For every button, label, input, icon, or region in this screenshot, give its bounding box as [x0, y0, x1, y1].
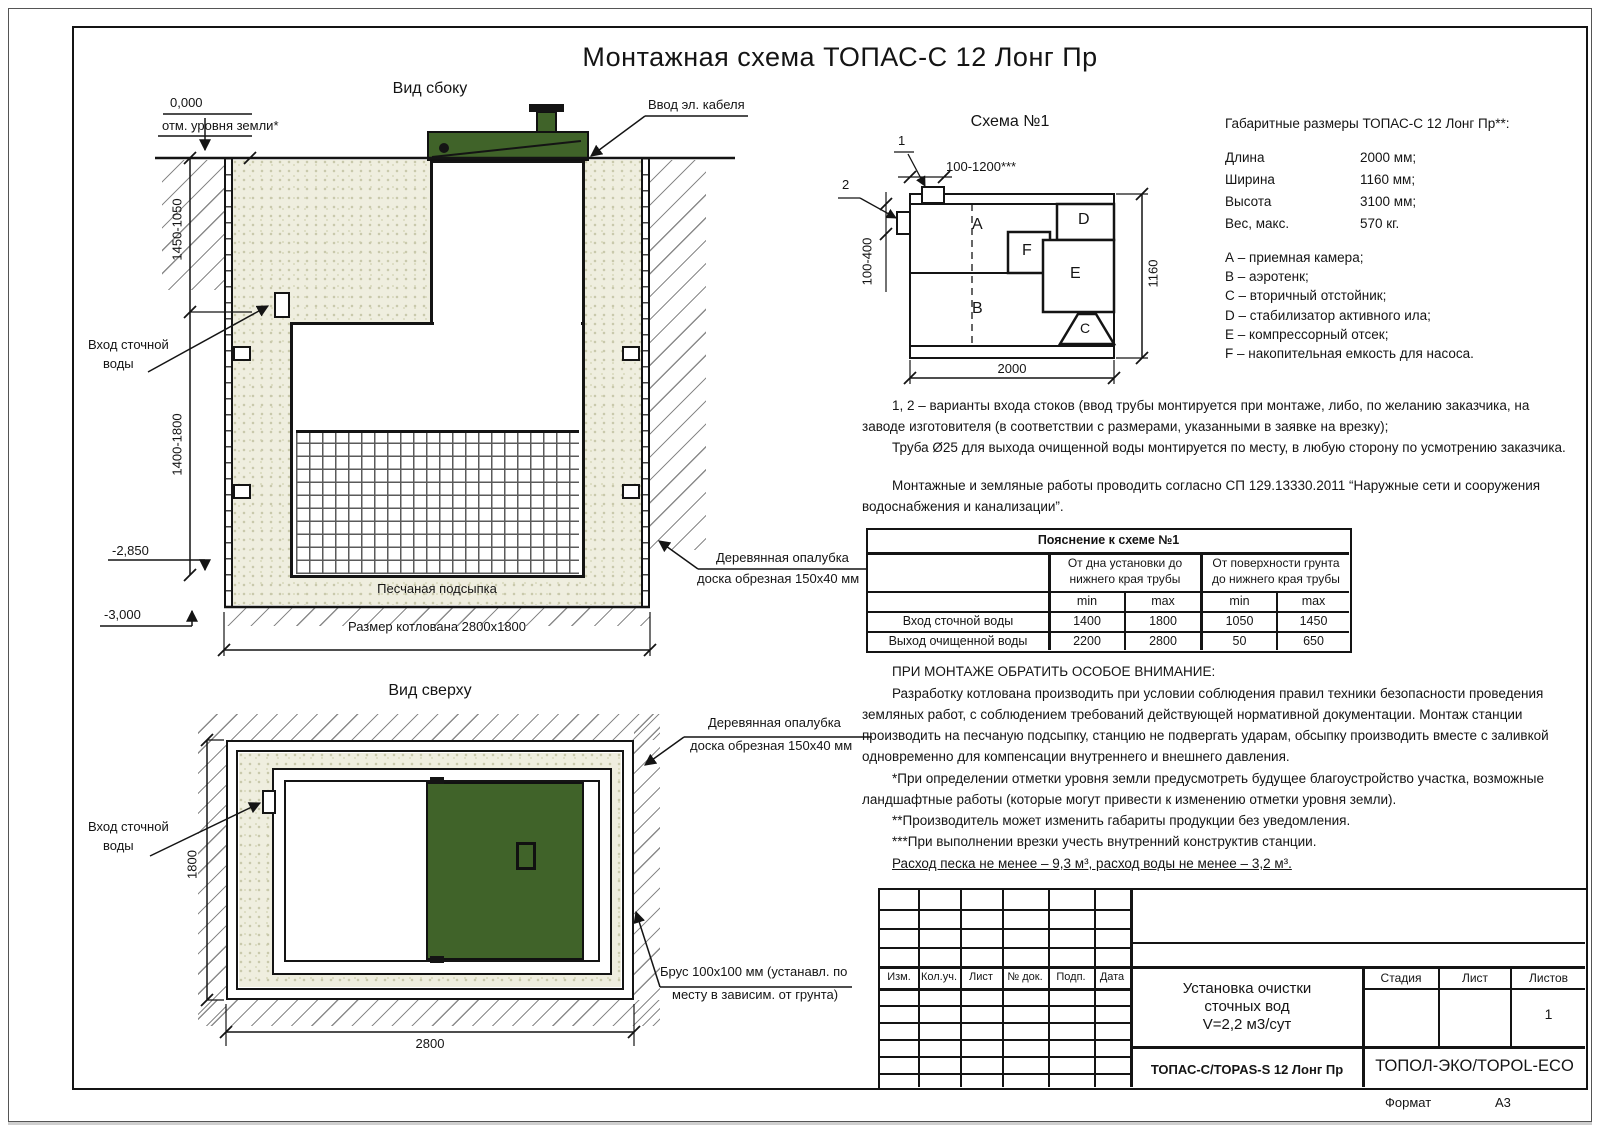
top-inlet-stub — [262, 790, 276, 814]
top-inlet-label-line2: воды — [103, 839, 134, 854]
cell: 2800 — [1126, 634, 1200, 650]
dim-1450-1050: 1450-1050 — [171, 189, 186, 269]
title-block: Изм. Кол.уч. Лист № док. Подп. Дата Уста… — [878, 888, 1588, 1090]
legend-item: E – компрессорный отсек; — [1225, 327, 1388, 342]
cell: 50 — [1203, 634, 1276, 650]
rev-col-izm: Изм. — [880, 971, 918, 983]
note-line: водоснабжения и канализации”. — [862, 499, 1064, 514]
drawing-sheet: Монтажная схема ТОПАС-С 12 Лонг Пр Вид с… — [0, 0, 1600, 1131]
chamber-a-label: A — [972, 216, 983, 234]
spec-value: 1160 мм; — [1360, 172, 1415, 187]
ground-hatch-right — [650, 160, 706, 550]
attention-line: производить на песчаную подсыпку, станци… — [862, 728, 1549, 743]
pipe-table-group1-line2: нижнего края трубы — [1050, 572, 1200, 587]
station-seam-patch — [434, 319, 581, 328]
cell: 2200 — [1050, 634, 1124, 650]
stage-header: Стадия — [1364, 971, 1438, 985]
level-minus-3000: -3,000 — [104, 608, 141, 623]
wall-clamp — [622, 346, 640, 361]
formwork-label-line2: доска обрезная 150х40 мм — [697, 572, 859, 587]
side-view-title: Вид сбоку — [330, 80, 530, 98]
row-label: Выход очищенной воды — [868, 634, 1048, 650]
top-view-title: Вид сверху — [330, 682, 530, 700]
top-lid-hinge-top — [430, 777, 444, 784]
top-formwork-label-line1: Деревянная опалубка — [708, 716, 841, 731]
spec-value: 3100 мм; — [1360, 194, 1416, 209]
schema-dim-1160: 1160 — [1147, 233, 1162, 313]
lid-vent-pipe — [536, 111, 557, 133]
beam-label-line1: Брус 100х100 мм (устанавл. по — [660, 965, 847, 980]
station-lid — [427, 131, 589, 161]
zero-level-mark: 0,000 — [170, 96, 203, 111]
sheets-value: 1 — [1512, 1006, 1585, 1022]
legend-item: В – аэротенк; — [1225, 269, 1309, 284]
page-title: Монтажная схема ТОПАС-С 12 Лонг Пр — [500, 42, 1180, 73]
spec-label: Длина — [1225, 150, 1265, 165]
chamber-d-label: D — [1078, 211, 1090, 229]
sand-bed-label: Песчаная подсыпка — [330, 582, 544, 597]
formwork-wall-left — [224, 158, 233, 607]
rev-col-podp: Подп. — [1048, 971, 1094, 983]
schema-dim-inlet: 100-1200*** — [946, 160, 1016, 175]
specs-title: Габаритные размеры ТОПАС-С 12 Лонг Пр**: — [1225, 116, 1509, 131]
top-formwork-label-line2: доска обрезная 150х40 мм — [690, 739, 852, 754]
spec-label: Вес, макс. — [1225, 216, 1289, 231]
lid-vent-cap — [529, 104, 564, 112]
project-name-line3: V=2,2 м3/сут — [1132, 1016, 1362, 1033]
min-header: min — [1050, 594, 1124, 610]
pipe-table-group2-line1: От поверхности грунта — [1203, 556, 1349, 571]
pipe-table-group1-line1: От дна установки до — [1050, 556, 1200, 571]
sheet-header: Лист — [1440, 971, 1510, 985]
legend-item: F – накопительная емкость для насоса. — [1225, 346, 1474, 361]
inlet-pipe-stub — [274, 292, 290, 318]
cable-entry-label: Ввод эл. кабеля — [648, 98, 745, 113]
chamber-f-label: F — [1022, 242, 1032, 260]
rev-col-list: Лист — [960, 971, 1002, 983]
wall-clamp — [233, 484, 251, 499]
row-label: Вход сточной воды — [868, 614, 1048, 630]
dim-2800: 2800 — [380, 1037, 480, 1052]
cell: 1400 — [1050, 614, 1124, 630]
pipe-table: Пояснение к схеме №1 От дна установки до… — [866, 528, 1352, 653]
note-line: Труба Ø25 для выхода очищенной воды монт… — [862, 440, 1566, 455]
legend-item: D – стабилизатор активного ила; — [1225, 308, 1431, 323]
format-value: А3 — [1495, 1096, 1511, 1111]
level-minus-2850: -2,850 — [112, 544, 149, 559]
project-name-line2: сточных вод — [1132, 998, 1362, 1015]
formwork-label-line1: Деревянная опалубка — [716, 551, 849, 566]
inlet-label-line2: воды — [103, 357, 134, 372]
top-hatch-top — [198, 714, 660, 740]
max-header: max — [1126, 594, 1200, 610]
zero-level-caption: отм. уровня земли* — [162, 119, 279, 134]
project-name-line1: Установка очистки — [1132, 980, 1362, 997]
company-name: ТОПОЛ-ЭКО/TOPOL-ECO — [1364, 1057, 1585, 1076]
wall-clamp — [622, 484, 640, 499]
schema-dim-2000: 2000 — [962, 362, 1062, 377]
rev-col-data: Дата — [1094, 971, 1130, 983]
cell: 1450 — [1278, 614, 1349, 630]
spec-value: 2000 мм; — [1360, 150, 1416, 165]
note-line: заводе изготовителя (в соответствии с ра… — [862, 419, 1388, 434]
top-lid-handle — [516, 842, 536, 870]
schema-callout-2: 2 — [842, 178, 849, 193]
chamber-b-label: B — [972, 300, 983, 318]
model-designation: ТОПАС-С/TOPAS-S 12 Лонг Пр — [1132, 1062, 1362, 1077]
beam-label-line2: месту в зависим. от грунта) — [672, 988, 838, 1003]
pipe-table-title: Пояснение к схеме №1 — [868, 533, 1349, 549]
top-hatch-left — [198, 714, 226, 1026]
station-neck — [430, 160, 585, 325]
wall-clamp — [233, 346, 251, 361]
footnote-line: ***При выполнении врезки учесть внутренн… — [862, 834, 1316, 849]
schema-title: Схема №1 — [930, 113, 1090, 131]
min-header: min — [1203, 594, 1276, 610]
format-label: Формат — [1385, 1096, 1431, 1111]
cell: 1050 — [1203, 614, 1276, 630]
note-line: 1, 2 – варианты входа стоков (ввод трубы… — [862, 398, 1529, 413]
cell: 650 — [1278, 634, 1349, 650]
chamber-e-label: E — [1070, 265, 1081, 283]
attention-heading: ПРИ МОНТАЖЕ ОБРАТИТЬ ОСОБОЕ ВНИМАНИЕ: — [862, 664, 1215, 679]
dim-1800: 1800 — [186, 824, 201, 904]
page-edge-shadow — [8, 1122, 1592, 1125]
spec-value: 570 кг. — [1360, 216, 1399, 231]
pit-size-label: Размер котлована 2800х1800 — [287, 620, 587, 635]
consumption-note: Расход песка не менее – 9,3 м³, расход в… — [862, 856, 1292, 871]
station-lower-grid — [296, 430, 579, 574]
chamber-c-label: C — [1080, 320, 1090, 336]
spec-label: Высота — [1225, 194, 1271, 209]
footnote-line: **Производитель может изменить габариты … — [862, 813, 1350, 828]
formwork-wall-right — [641, 158, 650, 607]
max-header: max — [1278, 594, 1349, 610]
top-lid-hinge-bottom — [430, 956, 444, 963]
attention-line: Разработку котлована производить при усл… — [862, 686, 1543, 701]
schema-dim-left: 100-400 — [861, 221, 876, 301]
spec-label: Ширина — [1225, 172, 1275, 187]
top-hatch-right — [634, 714, 660, 1026]
cell: 1800 — [1126, 614, 1200, 630]
top-hatch-bottom — [198, 1000, 660, 1026]
pipe-table-group2-line2: до нижнего края трубы — [1203, 572, 1349, 587]
footnote-line: ландшафтные работы (которые могут привес… — [862, 792, 1396, 807]
inlet-label-line1: Вход сточной — [88, 338, 169, 353]
attention-line: одновременно для компенсации внутреннего… — [862, 749, 1290, 764]
legend-item: С – вторичный отстойник; — [1225, 288, 1386, 303]
top-lid-green — [426, 782, 584, 960]
sheets-header: Листов — [1512, 971, 1585, 985]
note-line: Монтажные и земляные работы проводить со… — [862, 478, 1540, 493]
dim-1400-1800: 1400-1800 — [171, 404, 186, 484]
footnote-line: *При определении отметки уровня земли пр… — [862, 771, 1544, 786]
rev-col-koluch: Кол.уч. — [918, 971, 960, 983]
top-inlet-label-line1: Вход сточной — [88, 820, 169, 835]
legend-item: А – приемная камера; — [1225, 250, 1363, 265]
attention-line: земляных работ, с соблюдением требований… — [862, 707, 1522, 722]
schema-callout-1: 1 — [898, 134, 905, 149]
rev-col-ndok: № док. — [1002, 971, 1048, 983]
